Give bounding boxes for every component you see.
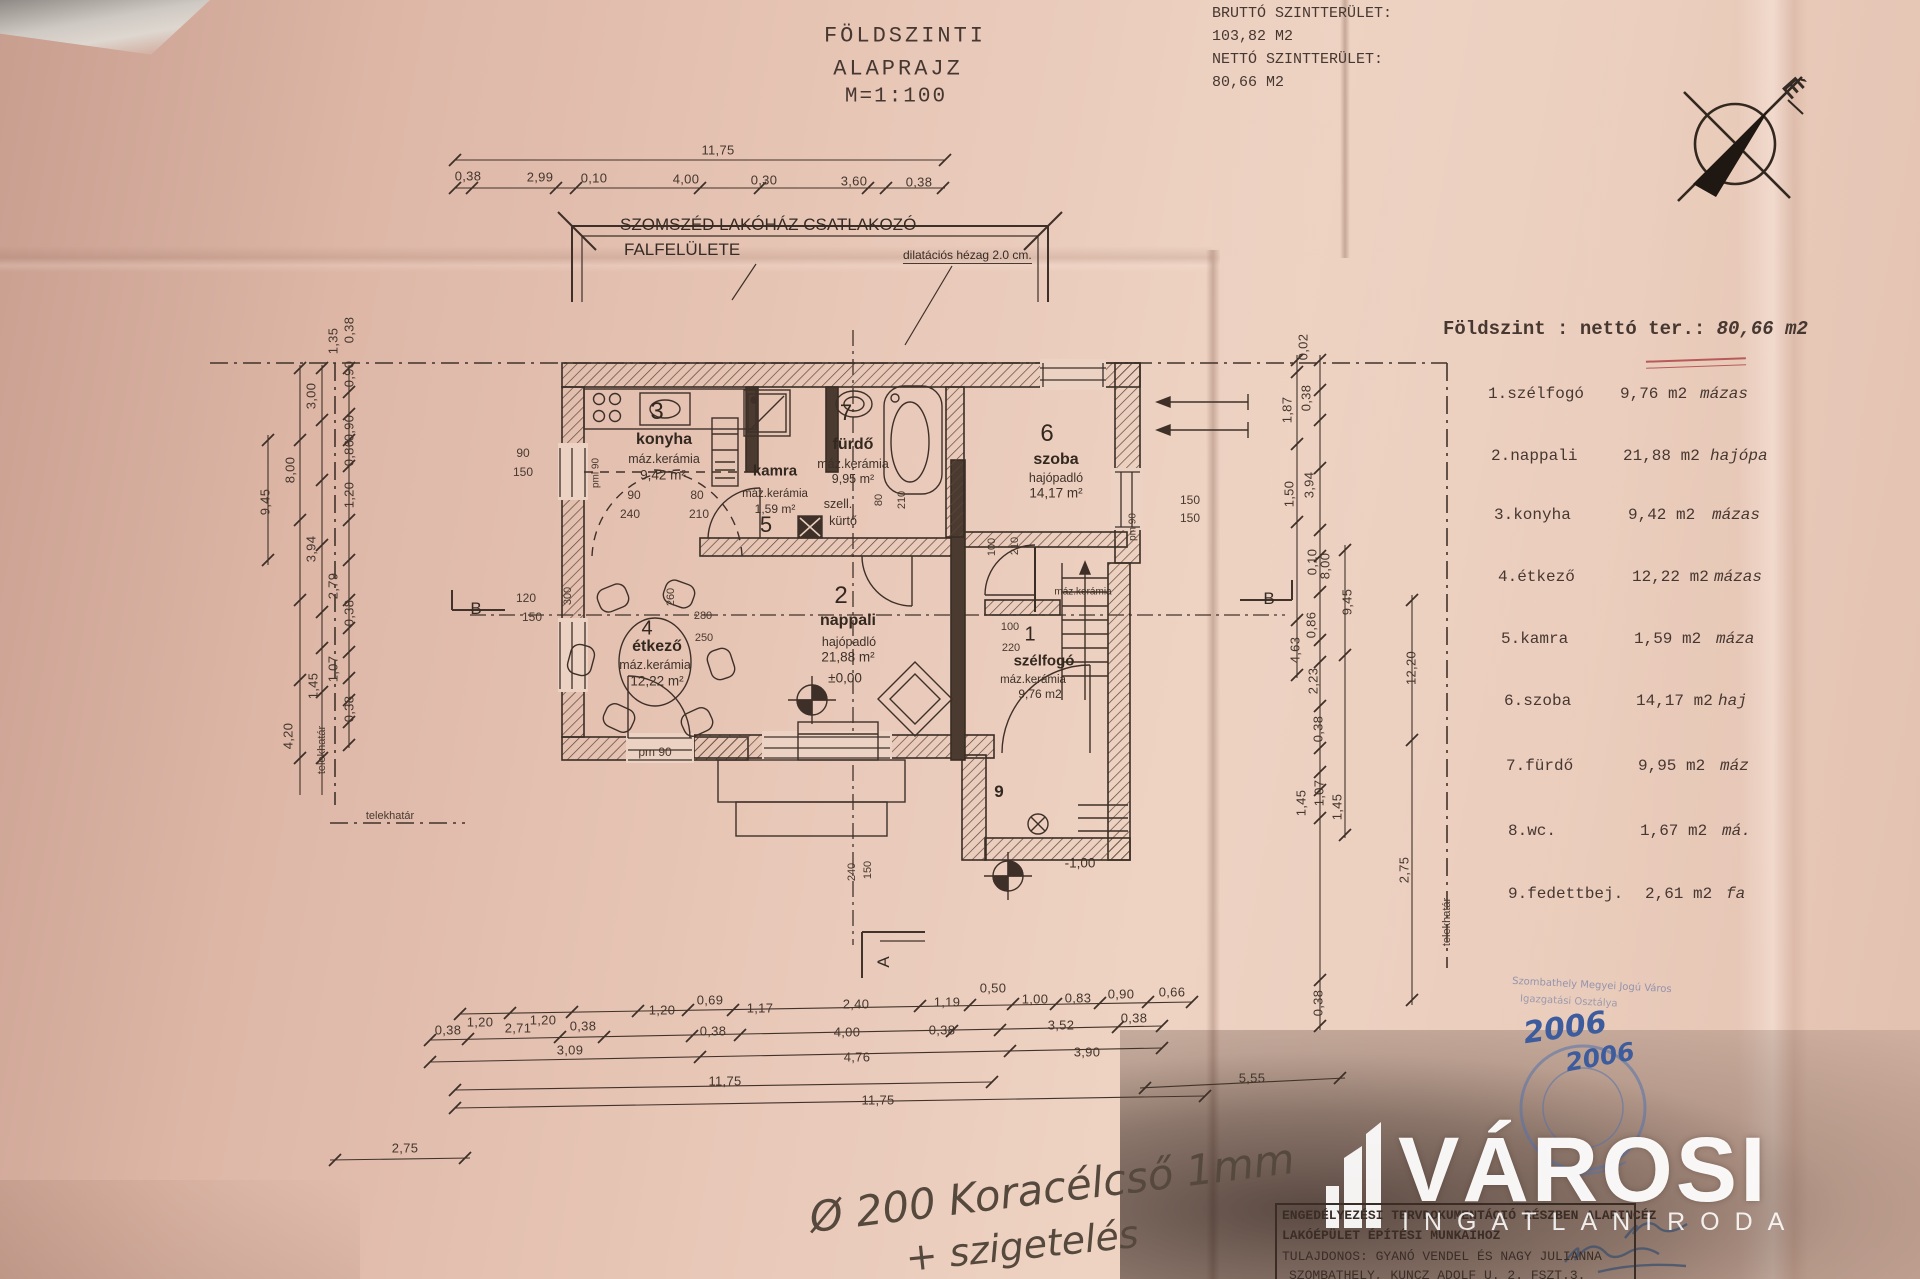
table-row: 7.fürdő [1506, 757, 1573, 775]
dim-right: 2,23 [1306, 668, 1321, 695]
door-dim: 80 [873, 494, 885, 506]
vent-label-1: szell. [824, 497, 852, 511]
net-area-label: NETTÓ SZINTTERÜLET: [1212, 51, 1383, 68]
dim-left: 1,35 [326, 328, 341, 355]
room-szelfogo-number: 1 [1024, 624, 1035, 647]
window-dim: 150 [1180, 493, 1200, 507]
section-marker-b-right: B [1263, 589, 1274, 609]
dim-top: 0,38 [455, 169, 482, 184]
door-dim: 210 [1009, 537, 1021, 555]
room-nappali-area: 21,88 m² [821, 650, 874, 665]
door-dim: 90 [627, 488, 640, 502]
dim-bottom: 4,76 [844, 1050, 871, 1065]
table-row-floor: haj [1718, 692, 1747, 710]
section-marker-a: A [874, 956, 894, 967]
table-row: 1.szélfogó [1488, 385, 1584, 403]
room-entry-level: -1,00 [1065, 856, 1096, 871]
door-dim: 210 [896, 491, 908, 509]
dim-right: 0,38 [1311, 716, 1326, 743]
gross-area-value: 103,82 M2 [1212, 28, 1293, 45]
dim-bottom: 0,69 [697, 993, 724, 1008]
title-block-line3: TULAJDONOS: GYANÓ VENDEL ÉS NAGY JULIANN… [1282, 1249, 1602, 1264]
dim-bottom: 1,20 [530, 1013, 557, 1028]
table-row-floor: fa [1726, 885, 1745, 903]
room-nappali-number: 2 [834, 582, 847, 610]
window-dim: 150 [513, 465, 533, 479]
drawing-title-line2: ALAPRAJZ [833, 57, 963, 82]
table-row-area: 21,88 m2 [1623, 447, 1700, 465]
dim-left: 8,00 [283, 457, 298, 484]
room-nappali-floor: hajópadló [822, 635, 876, 649]
room-kamra-floor: máz.kerámia [742, 488, 808, 500]
dim-bottom: 0,38 [1121, 1011, 1148, 1026]
dim-right: 8,00 [1318, 553, 1333, 580]
room-furdo-number: 7 [840, 400, 852, 426]
dim-right: 0,86 [1304, 612, 1319, 639]
dim-bottom: 2,71 [505, 1021, 532, 1036]
drawing-scale: M=1:100 [845, 86, 947, 109]
dim-left: 3,94 [304, 536, 319, 563]
room-table-title: Földszint : nettó ter.: 80,66 m2 [1443, 318, 1808, 340]
dim-left: 4,20 [281, 723, 296, 750]
dim-left: 0,38 [342, 600, 357, 627]
door-dim: 210 [689, 507, 709, 521]
dim-bottom: 3,90 [1074, 1045, 1101, 1060]
room-konyha-name: konyha [636, 431, 692, 449]
dim-bottom: 1,20 [649, 1003, 676, 1018]
neighbor-note-line2: FALFELÜLETE [624, 240, 740, 260]
dim-bottom: 1,19 [934, 995, 961, 1010]
room-etkezo-name: étkező [632, 638, 682, 656]
room-nappali-level: ±0,00 [828, 671, 862, 686]
dim-left: 9,45 [258, 489, 273, 516]
dim-left: 0,38 [342, 696, 357, 723]
dim-bottom: 1,20 [467, 1015, 494, 1030]
dim-left: 1,20 [342, 482, 357, 509]
room-konyha-area: 9,42 m² [640, 468, 686, 483]
net-area-value: 80,66 M2 [1212, 74, 1284, 91]
window-dim: 150 [522, 610, 542, 624]
door-dim: 80 [690, 488, 703, 502]
gross-area-label: BRUTTÓ SZINTTERÜLET: [1212, 5, 1392, 22]
logo-subtitle: INGATLANIRODA [1402, 1208, 1799, 1237]
table-row: 2.nappali [1491, 447, 1577, 465]
room-etkezo-area: 12,22 m² [630, 674, 683, 689]
table-row: 4.étkező [1498, 568, 1575, 586]
step-dim: 150 [862, 861, 874, 879]
table-row-floor: mázas [1700, 385, 1748, 403]
table-row-area: 9,42 m2 [1628, 506, 1695, 524]
room-konyha-floor: máz.kerámia [628, 452, 700, 466]
table-row-area: 2,61 m2 [1645, 885, 1712, 903]
dim-right: 1,50 [1282, 481, 1297, 508]
section-marker-b-left: B [470, 599, 481, 619]
dim-right: 1,87 [1280, 397, 1295, 424]
dim-bottom: 0,38 [435, 1023, 462, 1038]
floor-plan-photo: FÖLDSZINTI ALAPRAJZ M=1:100 BRUTTÓ SZINT… [0, 0, 1920, 1279]
dim-top: 4,00 [673, 172, 700, 187]
table-row: 6.szoba [1504, 692, 1571, 710]
drain-symbol [1028, 814, 1048, 834]
vent-label-2: kürtő [829, 514, 857, 528]
table-row-area: 9,76 m2 [1620, 385, 1687, 403]
dim-bottom: 1,00 [1022, 992, 1049, 1007]
title-block-line4: SZOMBATHELY, KUNCZ ADOLF U. 2. FSZT.3. [1289, 1268, 1585, 1279]
dim-right: 12,20 [1404, 651, 1419, 685]
dim-right: 4,63 [1288, 637, 1303, 664]
dim-left: 3,00 [304, 383, 319, 410]
table-row-floor: hajópa [1710, 447, 1768, 465]
room-szoba-floor: hajópadló [1029, 471, 1083, 485]
dim-top: 3,60 [841, 174, 868, 189]
room-furdo-area: 9,95 m² [832, 472, 874, 486]
furniture-dim: 300 [562, 587, 574, 605]
neighbor-note-line1: SZOMSZÉD LAKÓHÁZ CSATLAKOZÓ [620, 215, 916, 235]
dilatation-note: dilatációs hézag 2.0 cm. [903, 248, 1032, 264]
table-row-area: 14,17 m2 [1636, 692, 1713, 710]
room-furdo-name: fürdő [833, 436, 874, 454]
table-row-floor: mázas [1714, 568, 1762, 586]
window-dim: 150 [1180, 511, 1200, 525]
step-dim: 240 [846, 863, 858, 881]
dim-right: 0,38 [1299, 385, 1314, 412]
dim-bottom: 0,38 [929, 1023, 956, 1038]
dim-right: 9,45 [1340, 589, 1355, 616]
room-etkezo-floor: máz.kerámia [619, 658, 691, 672]
table-row: 9.fedettbej. [1508, 885, 1623, 903]
room-nappali-name: nappali [820, 612, 876, 630]
door-dim: 100 [1001, 621, 1019, 633]
boundary-label-bottom: telekhatár [366, 810, 414, 822]
boundary-label-left: telekhatár [316, 726, 328, 774]
dim-bottom: 3,09 [557, 1043, 584, 1058]
dim-left: 0,86 [342, 440, 357, 467]
window-dim: 120 [516, 591, 536, 605]
dim-left-bottom: 2,75 [392, 1141, 419, 1156]
dim-top: 0,38 [906, 175, 933, 190]
dim-bottom: 2,40 [843, 997, 870, 1012]
dim-bottom: 3,52 [1048, 1018, 1075, 1033]
dim-top: 0,30 [751, 173, 778, 188]
dim-right: 2,75 [1397, 857, 1412, 884]
room-wc-floor: máz.kerámia [1054, 587, 1111, 598]
table-row-floor: má. [1722, 822, 1751, 840]
window-dim: pm 90 [1128, 513, 1139, 541]
table-row-area: 1,59 m2 [1634, 630, 1701, 648]
window-dim: pm 90 [638, 745, 671, 759]
room-szelfogo-floor: máz.kerámia [1000, 674, 1066, 686]
dim-bottom: 4,00 [834, 1025, 861, 1040]
door-dim: 240 [620, 507, 640, 521]
furniture-dim: 280 [694, 610, 712, 622]
room-konyha-number: 3 [650, 398, 663, 426]
room-szelfogo-area: 9,76 m2 [1018, 687, 1061, 701]
room-entry-number: 9 [994, 782, 1003, 802]
table-row-floor: máz [1720, 757, 1749, 775]
boundary-label-right: telekhatár [1441, 898, 1453, 946]
window-dim: pml 90 [591, 458, 602, 488]
table-row-area: 12,22 m2 [1632, 568, 1709, 586]
room-szoba-number: 6 [1040, 420, 1053, 448]
table-row: 3.konyha [1494, 506, 1571, 524]
dim-top: 2,99 [527, 170, 554, 185]
table-row-floor: máza [1716, 630, 1754, 648]
dim-left: 2,79 [326, 573, 341, 600]
dim-left: 0,38 [342, 317, 357, 344]
dim-bottom: 0,38 [570, 1019, 597, 1034]
dim-right: 1,45 [1294, 790, 1309, 817]
plan-linework [0, 0, 1920, 1279]
dim-top: 0,10 [581, 171, 608, 186]
table-row: 5.kamra [1501, 630, 1568, 648]
vent-arrows [1157, 394, 1248, 438]
table-row-area: 9,95 m2 [1638, 757, 1705, 775]
dim-right: 1,07 [1312, 780, 1327, 807]
window-dim: 90 [516, 446, 529, 460]
dim-bottom: 0,90 [1108, 987, 1135, 1002]
table-row: 8.wc. [1508, 822, 1556, 840]
dim-bottom: 0,38 [700, 1024, 727, 1039]
room-furdo-floor: máz.kerámia [817, 457, 889, 471]
table-row-area: 1,67 m2 [1640, 822, 1707, 840]
dim-bottom: 0,83 [1065, 991, 1092, 1006]
room-table-title-prefix: Földszint : nettó ter.: [1443, 318, 1705, 340]
room-szoba-name: szoba [1033, 451, 1078, 469]
door-dim: 220 [1002, 642, 1020, 654]
dim-bottom: 11,75 [708, 1074, 741, 1089]
dim-left: 1,07 [326, 656, 341, 683]
room-kamra-number: 5 [760, 512, 772, 538]
dim-bottom: 11,75 [861, 1093, 894, 1108]
dim-right: 0,38 [1311, 990, 1326, 1017]
furniture-dim: 260 [665, 588, 677, 606]
dim-bottom: 1,17 [747, 1001, 774, 1016]
room-szelfogo-name: szélfogó [1014, 653, 1075, 670]
door-dim: 100 [986, 538, 998, 556]
dim-left: 1,45 [306, 673, 321, 700]
dim-left: 0,90 [342, 361, 357, 388]
dim-bottom: 0,50 [980, 981, 1007, 996]
room-kamra-name: kamra [753, 463, 797, 480]
dim-bottom: 5,55 [1239, 1071, 1266, 1086]
dim-right: 3,94 [1302, 472, 1317, 499]
furniture-dim: 250 [695, 632, 713, 644]
dim-left: 0,90 [342, 415, 357, 442]
room-szoba-area: 14,17 m² [1029, 486, 1082, 501]
dim-right: 0,02 [1296, 334, 1311, 361]
dim-bottom: 0,66 [1159, 985, 1186, 1000]
dim-total-top: 11,75 [701, 143, 734, 158]
room-table-title-value: 80,66 m2 [1717, 318, 1808, 340]
table-row-floor: mázas [1712, 506, 1760, 524]
drawing-title-line1: FÖLDSZINTI [824, 24, 986, 49]
dim-right: 1,45 [1330, 794, 1345, 821]
